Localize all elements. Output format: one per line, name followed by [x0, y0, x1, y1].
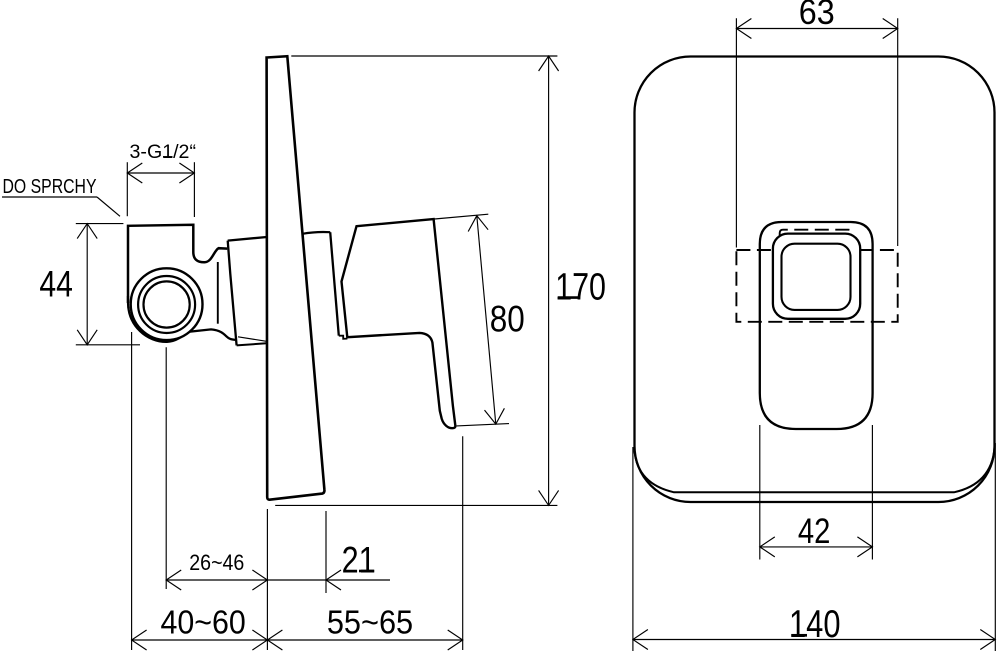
svg-text:21: 21: [342, 539, 376, 581]
svg-text:170: 170: [555, 266, 606, 308]
svg-text:3-G1/2“: 3-G1/2“: [130, 141, 197, 163]
svg-text:DO SPRCHY: DO SPRCHY: [3, 175, 97, 198]
svg-text:44: 44: [39, 263, 73, 305]
svg-text:26~46: 26~46: [189, 550, 244, 575]
svg-text:80: 80: [490, 299, 525, 340]
svg-text:55~65: 55~65: [327, 604, 413, 641]
svg-text:63: 63: [799, 0, 835, 32]
svg-text:40~60: 40~60: [160, 604, 245, 641]
svg-text:42: 42: [798, 511, 831, 551]
